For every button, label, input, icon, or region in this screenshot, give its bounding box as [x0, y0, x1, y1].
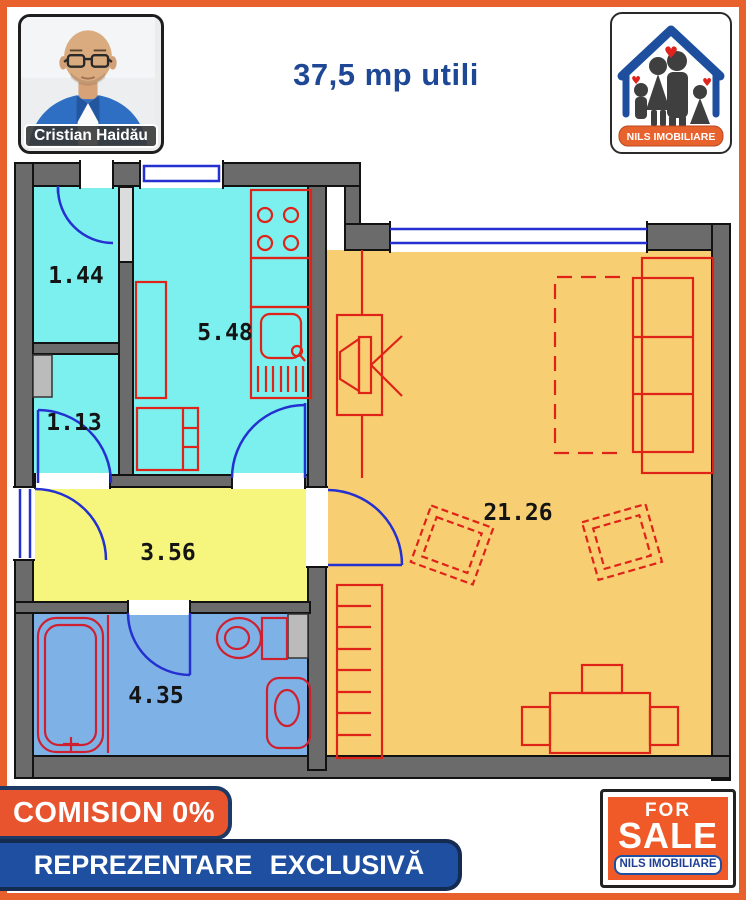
- svg-text:♥: ♥: [664, 43, 678, 62]
- room-area-label: 1.44: [48, 263, 103, 289]
- room-area-label: 21.26: [483, 500, 552, 526]
- room-area-label: 3.56: [140, 540, 195, 566]
- representation-banner: REPREZENTARE EXCLUSIVĂ: [0, 839, 462, 891]
- floor-plan: 1.44 5.48 1.13 3.56 4.35 21.26: [0, 155, 746, 800]
- for-sale-sign: FOR SALE NILS IMOBILIARE: [600, 789, 736, 888]
- for-sale-brand-text: NILS IMOBILIARE: [614, 855, 722, 875]
- kitchen-window: [144, 166, 219, 181]
- agent-name: Cristian Haidău: [24, 124, 158, 148]
- usable-area-headline: 37,5 mp utili: [268, 57, 504, 93]
- family-icon: [634, 51, 710, 132]
- svg-text:♥: ♥: [702, 76, 712, 89]
- agent-photo: Cristian Haidău: [18, 14, 164, 154]
- commission-banner: COMISION 0%: [0, 786, 232, 840]
- agency-logo: ♥ ♥ ♥ NILS IMOBILIARE: [610, 12, 732, 154]
- storage-shelf: [33, 355, 52, 397]
- logo-brand-text: NILS IMOBILIARE: [627, 131, 716, 143]
- room-area-label: 4.35: [128, 683, 183, 709]
- washing-machine-icon: [288, 614, 308, 658]
- listing-flyer: Cristian Haidău 37,5 mp utili: [0, 0, 746, 900]
- for-sale-main-text: SALE: [603, 820, 733, 852]
- room-area-label: 5.48: [197, 320, 252, 346]
- svg-text:♥: ♥: [631, 74, 641, 87]
- room-area-label: 1.13: [46, 410, 101, 436]
